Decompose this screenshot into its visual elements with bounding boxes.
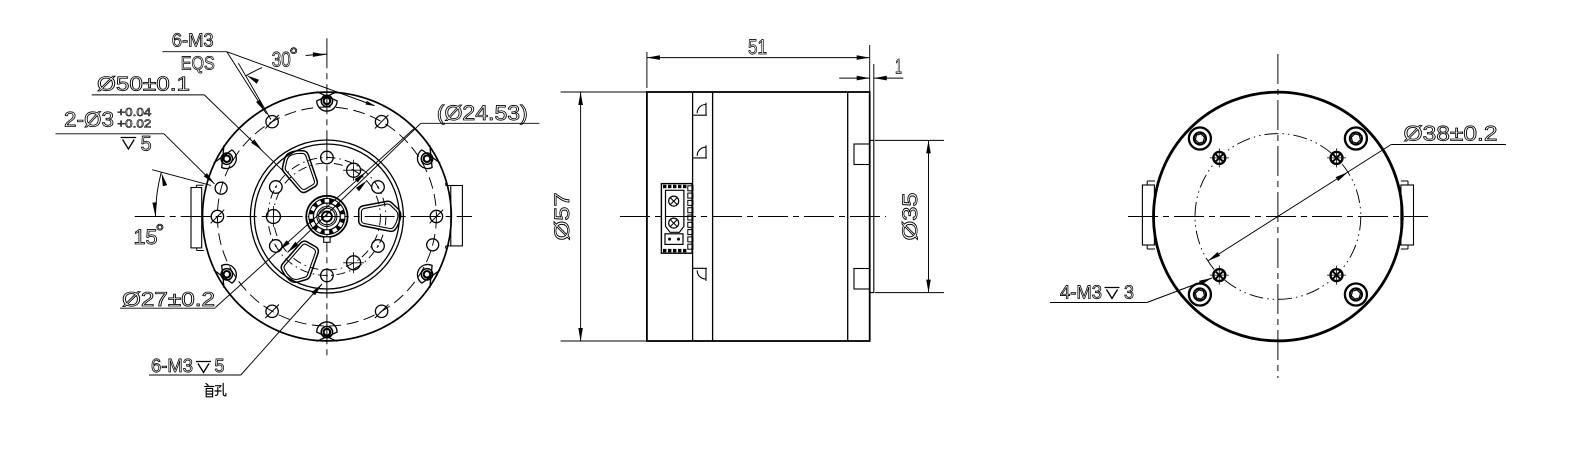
svg-text:+0.02: +0.02 (117, 119, 151, 131)
svg-text:+0.04: +0.04 (117, 107, 152, 119)
svg-text:6-M3: 6-M3 (151, 356, 193, 377)
svg-text:5: 5 (141, 133, 152, 156)
svg-text:Ø38±0.2: Ø38±0.2 (1404, 123, 1498, 146)
svg-text:°: ° (156, 220, 165, 245)
svg-text:°: ° (289, 43, 298, 68)
svg-text:EQS: EQS (181, 53, 215, 74)
svg-text:5: 5 (215, 356, 225, 377)
svg-text:Ø50±0.1: Ø50±0.1 (97, 73, 190, 95)
svg-text:(Ø24.53): (Ø24.53) (437, 102, 528, 125)
svg-text:4-M3: 4-M3 (1060, 283, 1102, 304)
svg-text:51: 51 (748, 36, 767, 59)
svg-text:15: 15 (134, 226, 158, 249)
svg-text:Ø27±0.2: Ø27±0.2 (122, 289, 215, 311)
svg-text:2-Ø3: 2-Ø3 (64, 108, 114, 131)
svg-text:3: 3 (1124, 283, 1134, 304)
svg-text:Ø57: Ø57 (551, 193, 574, 241)
svg-text:Ø35: Ø35 (899, 193, 922, 241)
svg-text:1: 1 (895, 56, 902, 79)
svg-text:6-M3: 6-M3 (172, 31, 214, 52)
svg-text:30: 30 (272, 49, 291, 72)
